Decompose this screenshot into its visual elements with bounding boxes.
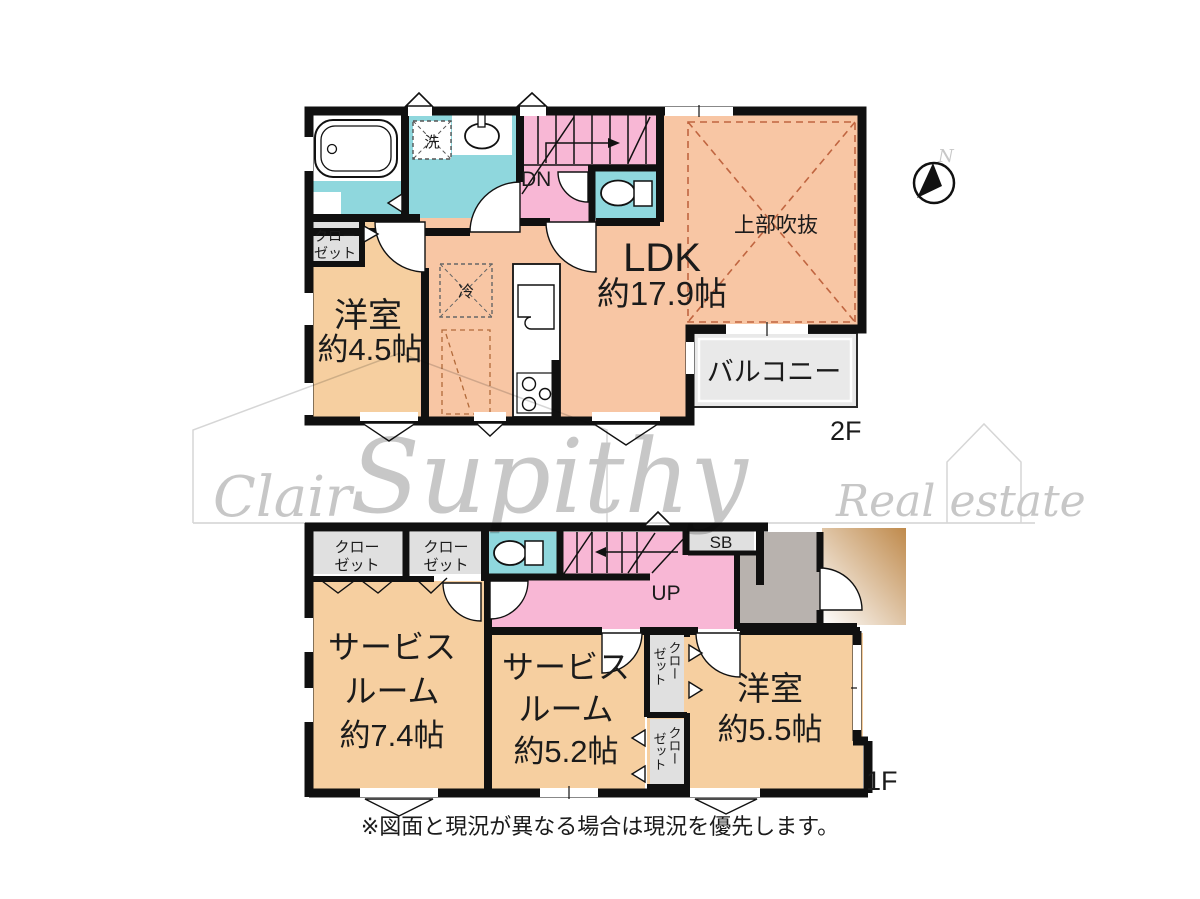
- service1-size: 約7.4帖: [339, 718, 444, 753]
- closet-1fb-line2: ゼット: [423, 557, 468, 574]
- stairs-dn-label: DN: [521, 168, 551, 191]
- bedroom-55-size: 約5.5帖: [717, 712, 822, 747]
- stairs-up-label: UP: [651, 582, 680, 605]
- service1-line2: ルーム: [344, 673, 439, 709]
- north-label: N: [937, 146, 955, 167]
- closet-2f-line1: クロー: [314, 228, 356, 244]
- bedroom-45-size: 約4.5帖: [317, 332, 422, 367]
- ldk-name: LDK: [623, 236, 701, 280]
- fridge-label: 冷: [458, 283, 474, 301]
- service1-line1: サービス: [328, 629, 456, 665]
- service2-line1: サービス: [502, 649, 630, 685]
- closet-1fa-line1: クロー: [334, 539, 379, 556]
- closet-v2-col2: ゼット: [652, 732, 667, 771]
- floorplan-canvas: 洗 冷: [0, 0, 1200, 899]
- floor-2f: 洗 冷: [304, 93, 862, 446]
- floor-1f-label: 1F: [866, 766, 898, 796]
- footer-note: ※図面と現況が異なる場合は現況を優先します。: [361, 814, 839, 839]
- washer-box: 洗: [413, 121, 451, 159]
- ldk-size: 約17.9帖: [597, 275, 727, 312]
- toilet-2f-icon: [601, 181, 652, 207]
- closet-v1-col2: ゼット: [652, 647, 667, 686]
- floorplan-page: 洗 冷: [0, 0, 1200, 899]
- watermark-brand: Supithy: [350, 418, 749, 537]
- laundry-label: 洗: [424, 134, 439, 151]
- bedroom-45-name: 洋室: [334, 297, 402, 335]
- closet-v2-col1: クロー: [667, 726, 682, 765]
- floor-2f-label: 2F: [830, 416, 862, 446]
- service2-line2: ルーム: [518, 691, 613, 727]
- bedroom-55-name: 洋室: [737, 670, 803, 707]
- toilet-1f-icon: [494, 541, 543, 565]
- closet-1fa-line2: ゼット: [334, 557, 379, 574]
- compass: N: [914, 146, 955, 203]
- watermark-right: Real estate: [835, 476, 1086, 527]
- closet-v1-col1: クロー: [667, 641, 682, 680]
- floor-1f: サービス ルーム 約7.4帖 サービス ルーム 約5.2帖 洋室 約5.5帖 U…: [304, 512, 906, 816]
- balcony-label: バルコニー: [707, 357, 841, 387]
- closet-1fb-line1: クロー: [423, 539, 468, 556]
- closet-2f-line2: ゼット: [314, 245, 356, 261]
- bathtub-icon: [315, 120, 397, 177]
- service2-size: 約5.2帖: [513, 734, 618, 769]
- void-label: 上部吹抜: [734, 214, 818, 237]
- watermark-left: Clair: [213, 465, 355, 530]
